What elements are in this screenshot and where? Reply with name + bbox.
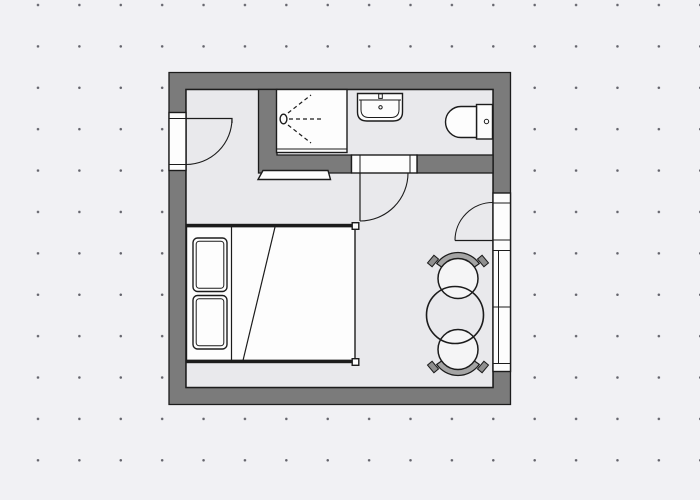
washbasin: Washbasin [358,94,403,122]
wall-tv: Wall-mounted TV [258,171,331,180]
shower: Shower [277,90,348,153]
floor-plan: Outer walls Bathroom partition wall Wall… [0,0,700,500]
pillow: Pillow [193,238,227,292]
bed-corner-post [352,359,359,366]
pillow: Pillow [193,296,227,350]
double-bed: Double bed Pillow Pillow [187,223,359,366]
toilet: Toilet [445,105,492,140]
shower-head-icon [280,114,287,124]
bed-corner-post [352,223,359,230]
